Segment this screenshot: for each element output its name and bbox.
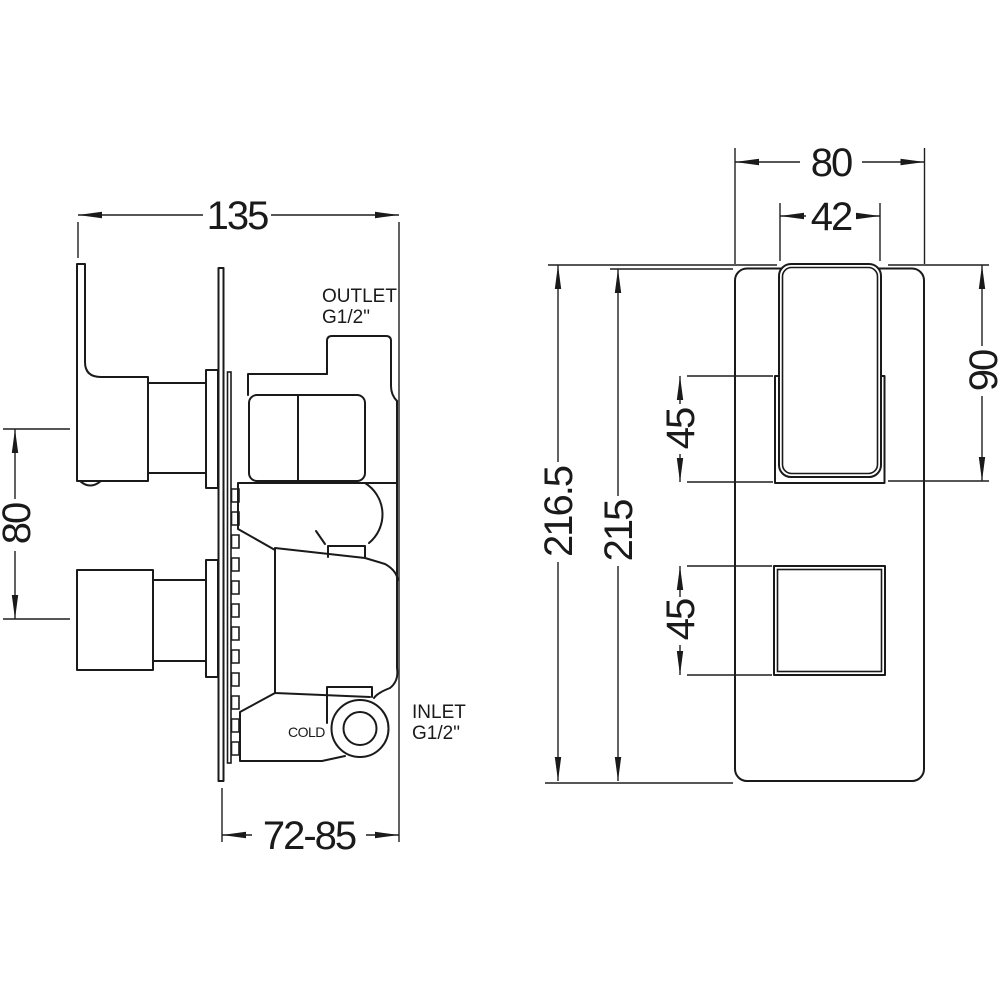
side-view-part [77, 264, 398, 781]
dim-plate-height: 215 [597, 500, 641, 561]
lever-handle-front [779, 264, 881, 477]
dim-handle-height: 90 [962, 350, 1000, 391]
lever-escutcheon [206, 370, 218, 488]
dim-overall-height: 216.5 [537, 466, 581, 557]
front-view: 80 42 90 45 45 216.5 [537, 141, 1000, 783]
body-right-edge [374, 401, 397, 698]
outlet-pipe [327, 336, 397, 401]
lever-stem [148, 383, 206, 473]
cartridge-block [249, 395, 365, 481]
dim-overall-depth: 135 [207, 194, 268, 238]
valve-technical-drawing: 135 80 72-85 OUTLET G1/2" INLET G1/2" CO… [0, 0, 1000, 1000]
diverter-square [774, 566, 885, 675]
inlet-label: INLET [412, 702, 466, 723]
thermostat-dome [365, 483, 382, 543]
inlet-port-outer [332, 700, 389, 757]
body-top-edge [248, 374, 327, 395]
diverter-knob [77, 570, 153, 670]
dim-handle-spacing: 80 [0, 503, 39, 544]
wall-plate-profile [219, 268, 224, 781]
diverter-escutcheon [206, 560, 218, 677]
dim-handle-width: 42 [811, 195, 852, 239]
mounting-strip [228, 372, 232, 763]
lever-handle [77, 264, 148, 481]
dim-recess-depth: 72-85 [263, 814, 356, 858]
cold-label: COLD [288, 724, 325, 740]
side-view: 135 80 72-85 OUTLET G1/2" INLET G1/2" CO… [0, 194, 466, 858]
inlet-port-inner [344, 712, 377, 745]
side-view-labels: OUTLET G1/2" INLET G1/2" COLD [288, 286, 466, 744]
inlet-thread-label: G1/2" [412, 723, 460, 744]
dim-plate-width: 80 [811, 141, 852, 185]
dim-diverter-recess-height: 45 [659, 599, 703, 640]
outlet-thread-label: G1/2" [322, 307, 370, 328]
dim-handle-recess-height: 45 [659, 408, 703, 449]
technical-drawing-page: 135 80 72-85 OUTLET G1/2" INLET G1/2" CO… [0, 0, 1000, 1000]
dome-tick [316, 531, 325, 544]
front-view-part [687, 264, 924, 781]
diverter-stem [153, 580, 206, 661]
cartridge-cover [275, 548, 398, 697]
outlet-label: OUTLET [322, 286, 397, 307]
